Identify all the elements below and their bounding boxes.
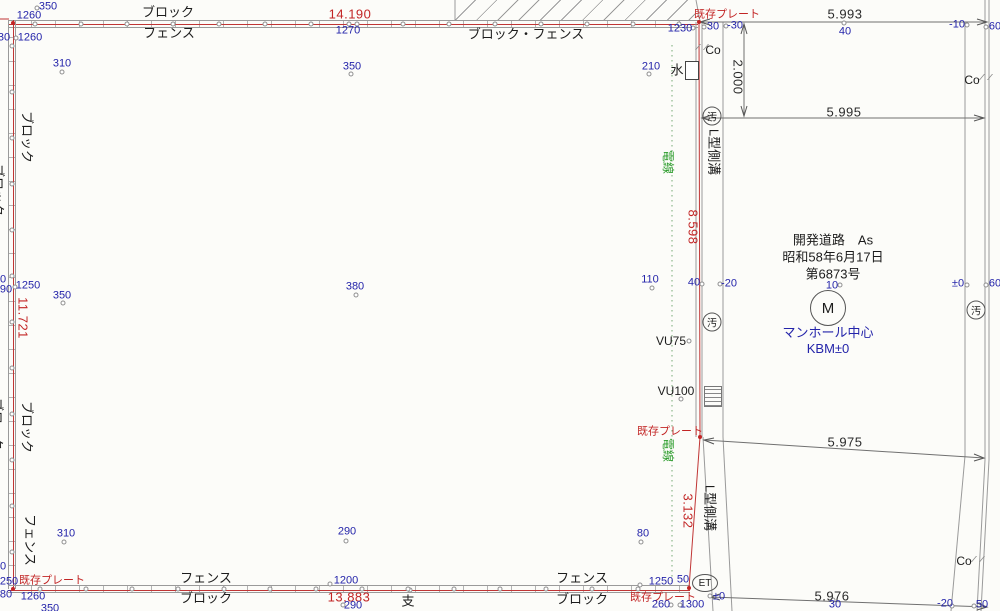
gutter-outer-lower: [723, 437, 732, 611]
dimension-label: 5.975: [827, 436, 862, 449]
survey-point-label: 1300: [680, 600, 704, 611]
survey-point-label: 80: [0, 590, 12, 601]
existing-plate-label: 既存プレート: [637, 427, 703, 438]
wall-label: フェンス: [180, 572, 232, 585]
survey-point-label: 60: [989, 22, 1000, 33]
survey-point-label: 1260: [21, 592, 45, 603]
road-feature-label: Co: [705, 44, 720, 56]
wall-survey-circle: [10, 228, 15, 233]
wall-survey-circle: [268, 587, 273, 592]
wall-survey-circle: [10, 550, 15, 555]
survey-point-label: 1200: [334, 576, 358, 587]
red-dimension-label: 8.598: [687, 209, 700, 244]
survey-point-marker: [708, 594, 713, 599]
wall-survey-circle: [10, 136, 15, 141]
survey-point-label: 210: [642, 62, 660, 73]
survey-point-marker: [965, 283, 970, 288]
survey-point-label: 80: [637, 529, 649, 540]
survey-point-label: 380: [346, 282, 364, 293]
wall-survey-circle: [10, 182, 15, 187]
road-note: 開発道路 As 昭和58年6月17日 第6873号: [782, 233, 883, 284]
survey-point-label: -30: [727, 21, 743, 32]
wall-label: ブロック・フェンス: [468, 28, 584, 41]
survey-point-label: 250: [0, 577, 18, 588]
survey-point-marker: [984, 25, 989, 30]
survey-point-marker: [702, 25, 707, 30]
survey-point-label: 110: [641, 275, 659, 286]
wall-survey-circle: [498, 587, 503, 592]
wall-label: ブロック: [0, 398, 4, 450]
wall-survey-circle: [10, 90, 15, 95]
road-feature-label: L型側溝: [704, 485, 717, 531]
survey-point-marker: [62, 540, 67, 545]
road-feature-label: VU100: [658, 385, 695, 397]
wall-label: ブロック: [0, 164, 5, 216]
wall-label: ブロック: [180, 592, 232, 605]
wall-label: フェンス: [143, 27, 195, 40]
survey-point-label: 350: [41, 604, 59, 611]
manhole-note-line2: KBM±0: [782, 341, 873, 357]
wall-label: フェンス: [24, 514, 37, 566]
wall-label: ブロック: [21, 111, 34, 163]
survey-point-marker: [344, 539, 349, 544]
drain-grate-symbol: [704, 386, 722, 407]
survey-point-label: 1270: [336, 26, 360, 37]
survey-point-label: ±0: [713, 592, 725, 603]
survey-point-label: 1260: [17, 11, 41, 22]
wall-survey-circle: [401, 22, 406, 27]
road-feature-label: 支: [401, 595, 414, 608]
survey-point-label: ±0: [952, 279, 964, 290]
survey-point-label: -20: [721, 279, 737, 290]
survey-point-label: 310: [57, 529, 75, 540]
survey-drawing-canvas[interactable]: 開発道路 As 昭和58年6月17日 第6873号 マンホール中心 KBM±0 …: [0, 0, 1000, 611]
road-note-line1: 開発道路 As: [782, 233, 883, 250]
wall-survey-circle: [10, 274, 15, 279]
circled-symbol-汚: 汚: [703, 107, 722, 126]
survey-point-label: 350: [343, 62, 361, 73]
circled-symbol-汚: 汚: [967, 301, 986, 320]
wall-survey-circle: [10, 504, 15, 509]
road-feature-label: L型側溝: [708, 129, 721, 175]
wall-survey-circle: [263, 22, 268, 27]
survey-point-label: 1250: [16, 281, 40, 292]
dimension-label: 5.993: [827, 8, 862, 21]
wall-survey-circle: [631, 22, 636, 27]
circled-symbol-M: M: [810, 290, 846, 326]
wall-survey-circle: [309, 22, 314, 27]
wall-survey-circle: [447, 22, 452, 27]
red-dimension-label: 3.132: [682, 493, 695, 528]
dimension-label: 2.000: [732, 59, 745, 94]
road-feature-label: Co: [956, 555, 971, 567]
circled-symbol-ET: ET: [692, 574, 718, 592]
wall-survey-circle: [544, 587, 549, 592]
survey-point-marker: [60, 70, 65, 75]
survey-point-label: 1250: [649, 577, 673, 588]
survey-point-marker: [984, 283, 989, 288]
survey-point-label: -20: [937, 599, 953, 610]
survey-point-label: 260: [652, 600, 670, 611]
survey-point-label: 290: [338, 527, 356, 538]
survey-point-marker: [650, 286, 655, 291]
survey-point-label: 30: [0, 33, 10, 44]
road-feature-label: Co: [964, 74, 979, 86]
survey-point-marker: [639, 540, 644, 545]
wall-survey-circle: [452, 587, 457, 592]
survey-point-marker: [700, 282, 705, 287]
red-dimension-label: 14.190: [329, 8, 372, 21]
wall-survey-circle: [33, 22, 38, 27]
boundary-point-marker: [11, 21, 15, 25]
survey-point-label: 50: [976, 600, 988, 611]
road-note-line2: 昭和58年6月17日: [782, 250, 883, 267]
wall-survey-circle: [406, 587, 411, 592]
survey-point-marker: [687, 339, 692, 344]
survey-point-label: 50: [677, 575, 689, 586]
wall-survey-circle: [10, 412, 15, 417]
dimension-label: 5.995: [826, 106, 861, 119]
wall-survey-circle: [10, 320, 15, 325]
road-feature-label: 水: [670, 64, 683, 77]
wall-survey-circle: [314, 587, 319, 592]
survey-point-label: 0: [0, 562, 6, 573]
survey-point-marker: [328, 582, 333, 587]
circled-symbol-汚: 汚: [703, 313, 722, 332]
survey-point-label: 60: [989, 279, 1000, 290]
wall-survey-circle: [130, 587, 135, 592]
survey-point-label: 290: [344, 601, 362, 611]
wall-label: ブロック: [21, 401, 34, 453]
wall-survey-circle: [10, 44, 15, 49]
wall-survey-circle: [125, 22, 130, 27]
survey-point-marker: [354, 293, 359, 298]
existing-plate-label: 既存プレート: [19, 576, 85, 587]
survey-point-label: 1260: [18, 33, 42, 44]
wall-survey-circle: [585, 22, 590, 27]
wall-survey-circle: [84, 587, 89, 592]
survey-point-label: 40: [839, 27, 851, 38]
survey-point-label: 350: [53, 291, 71, 302]
curb-right-lower: [951, 456, 965, 611]
survey-point-label: 30: [829, 600, 841, 611]
boundary-point-marker: [687, 586, 691, 590]
wall-survey-circle: [10, 458, 15, 463]
wall-label: ブロック: [556, 593, 608, 606]
survey-point-label: 90: [0, 285, 12, 296]
survey-point-label: 40: [688, 278, 700, 289]
linework-layer: [0, 0, 1000, 611]
power-line-label: 電線: [662, 438, 674, 462]
wall-survey-circle: [10, 366, 15, 371]
survey-point-label: 30: [707, 22, 719, 33]
survey-point-label: 350: [39, 2, 57, 13]
power-line-label: 電線: [662, 150, 674, 174]
survey-point-label: -10: [949, 20, 965, 31]
wall-survey-circle: [79, 22, 84, 27]
survey-point-marker: [965, 23, 970, 28]
boundary-point-marker: [697, 20, 701, 24]
survey-point-label: 310: [53, 59, 71, 70]
survey-point-label: 1230: [668, 24, 692, 35]
manhole-note: マンホール中心 KBM±0: [782, 325, 873, 358]
water-meter-symbol: [685, 61, 699, 80]
road-feature-label: VU75: [656, 335, 686, 347]
red-dimension-label: 11.721: [17, 297, 30, 339]
manhole-note-line1: マンホール中心: [782, 325, 873, 341]
wall-label: フェンス: [556, 572, 608, 585]
wall-survey-circle: [217, 22, 222, 27]
wall-label: ブロック: [142, 6, 194, 19]
